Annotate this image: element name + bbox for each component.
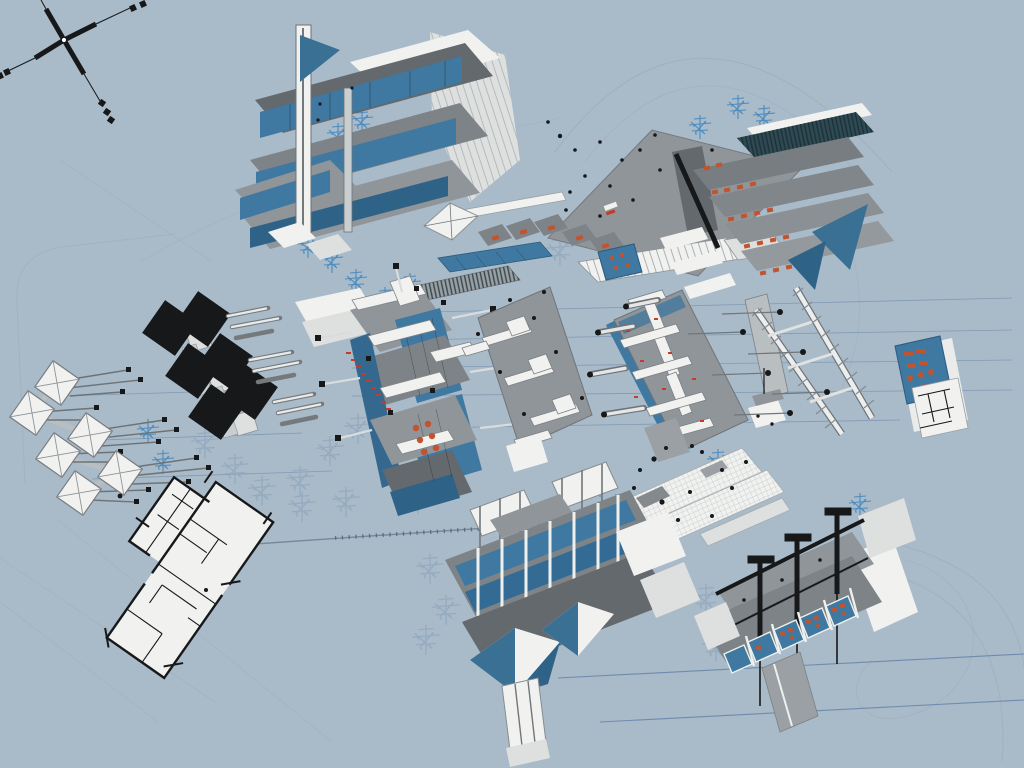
tree-icon: [689, 115, 711, 139]
stair-tongue: [502, 678, 550, 767]
pyramid-pavilions: [10, 361, 143, 516]
tower-blue-sail: [300, 35, 340, 82]
tree-icon: [416, 554, 444, 584]
blue-louvre-strip: [438, 242, 552, 272]
tree-icon: [248, 476, 276, 506]
axonometric-site-drawing: [0, 0, 1024, 768]
tree-icon: [286, 466, 314, 496]
building-central: [295, 263, 520, 516]
tree-icon: [332, 487, 360, 517]
flat-panel-right: [587, 290, 748, 462]
detail-card: [895, 336, 968, 438]
tree-icon: [412, 625, 440, 655]
detail-card-plan: [912, 378, 968, 438]
north-compass-icon: [0, 0, 147, 124]
tree-icon: [727, 95, 749, 119]
tree-icon: [221, 454, 249, 484]
black-panel-array: [142, 291, 322, 440]
tree-icon: [432, 595, 460, 625]
flat-panel-center: [462, 287, 592, 472]
tree-icon: [288, 492, 316, 522]
building-tower: [235, 25, 520, 260]
architectural-masterplan-canvas: [0, 0, 1024, 768]
